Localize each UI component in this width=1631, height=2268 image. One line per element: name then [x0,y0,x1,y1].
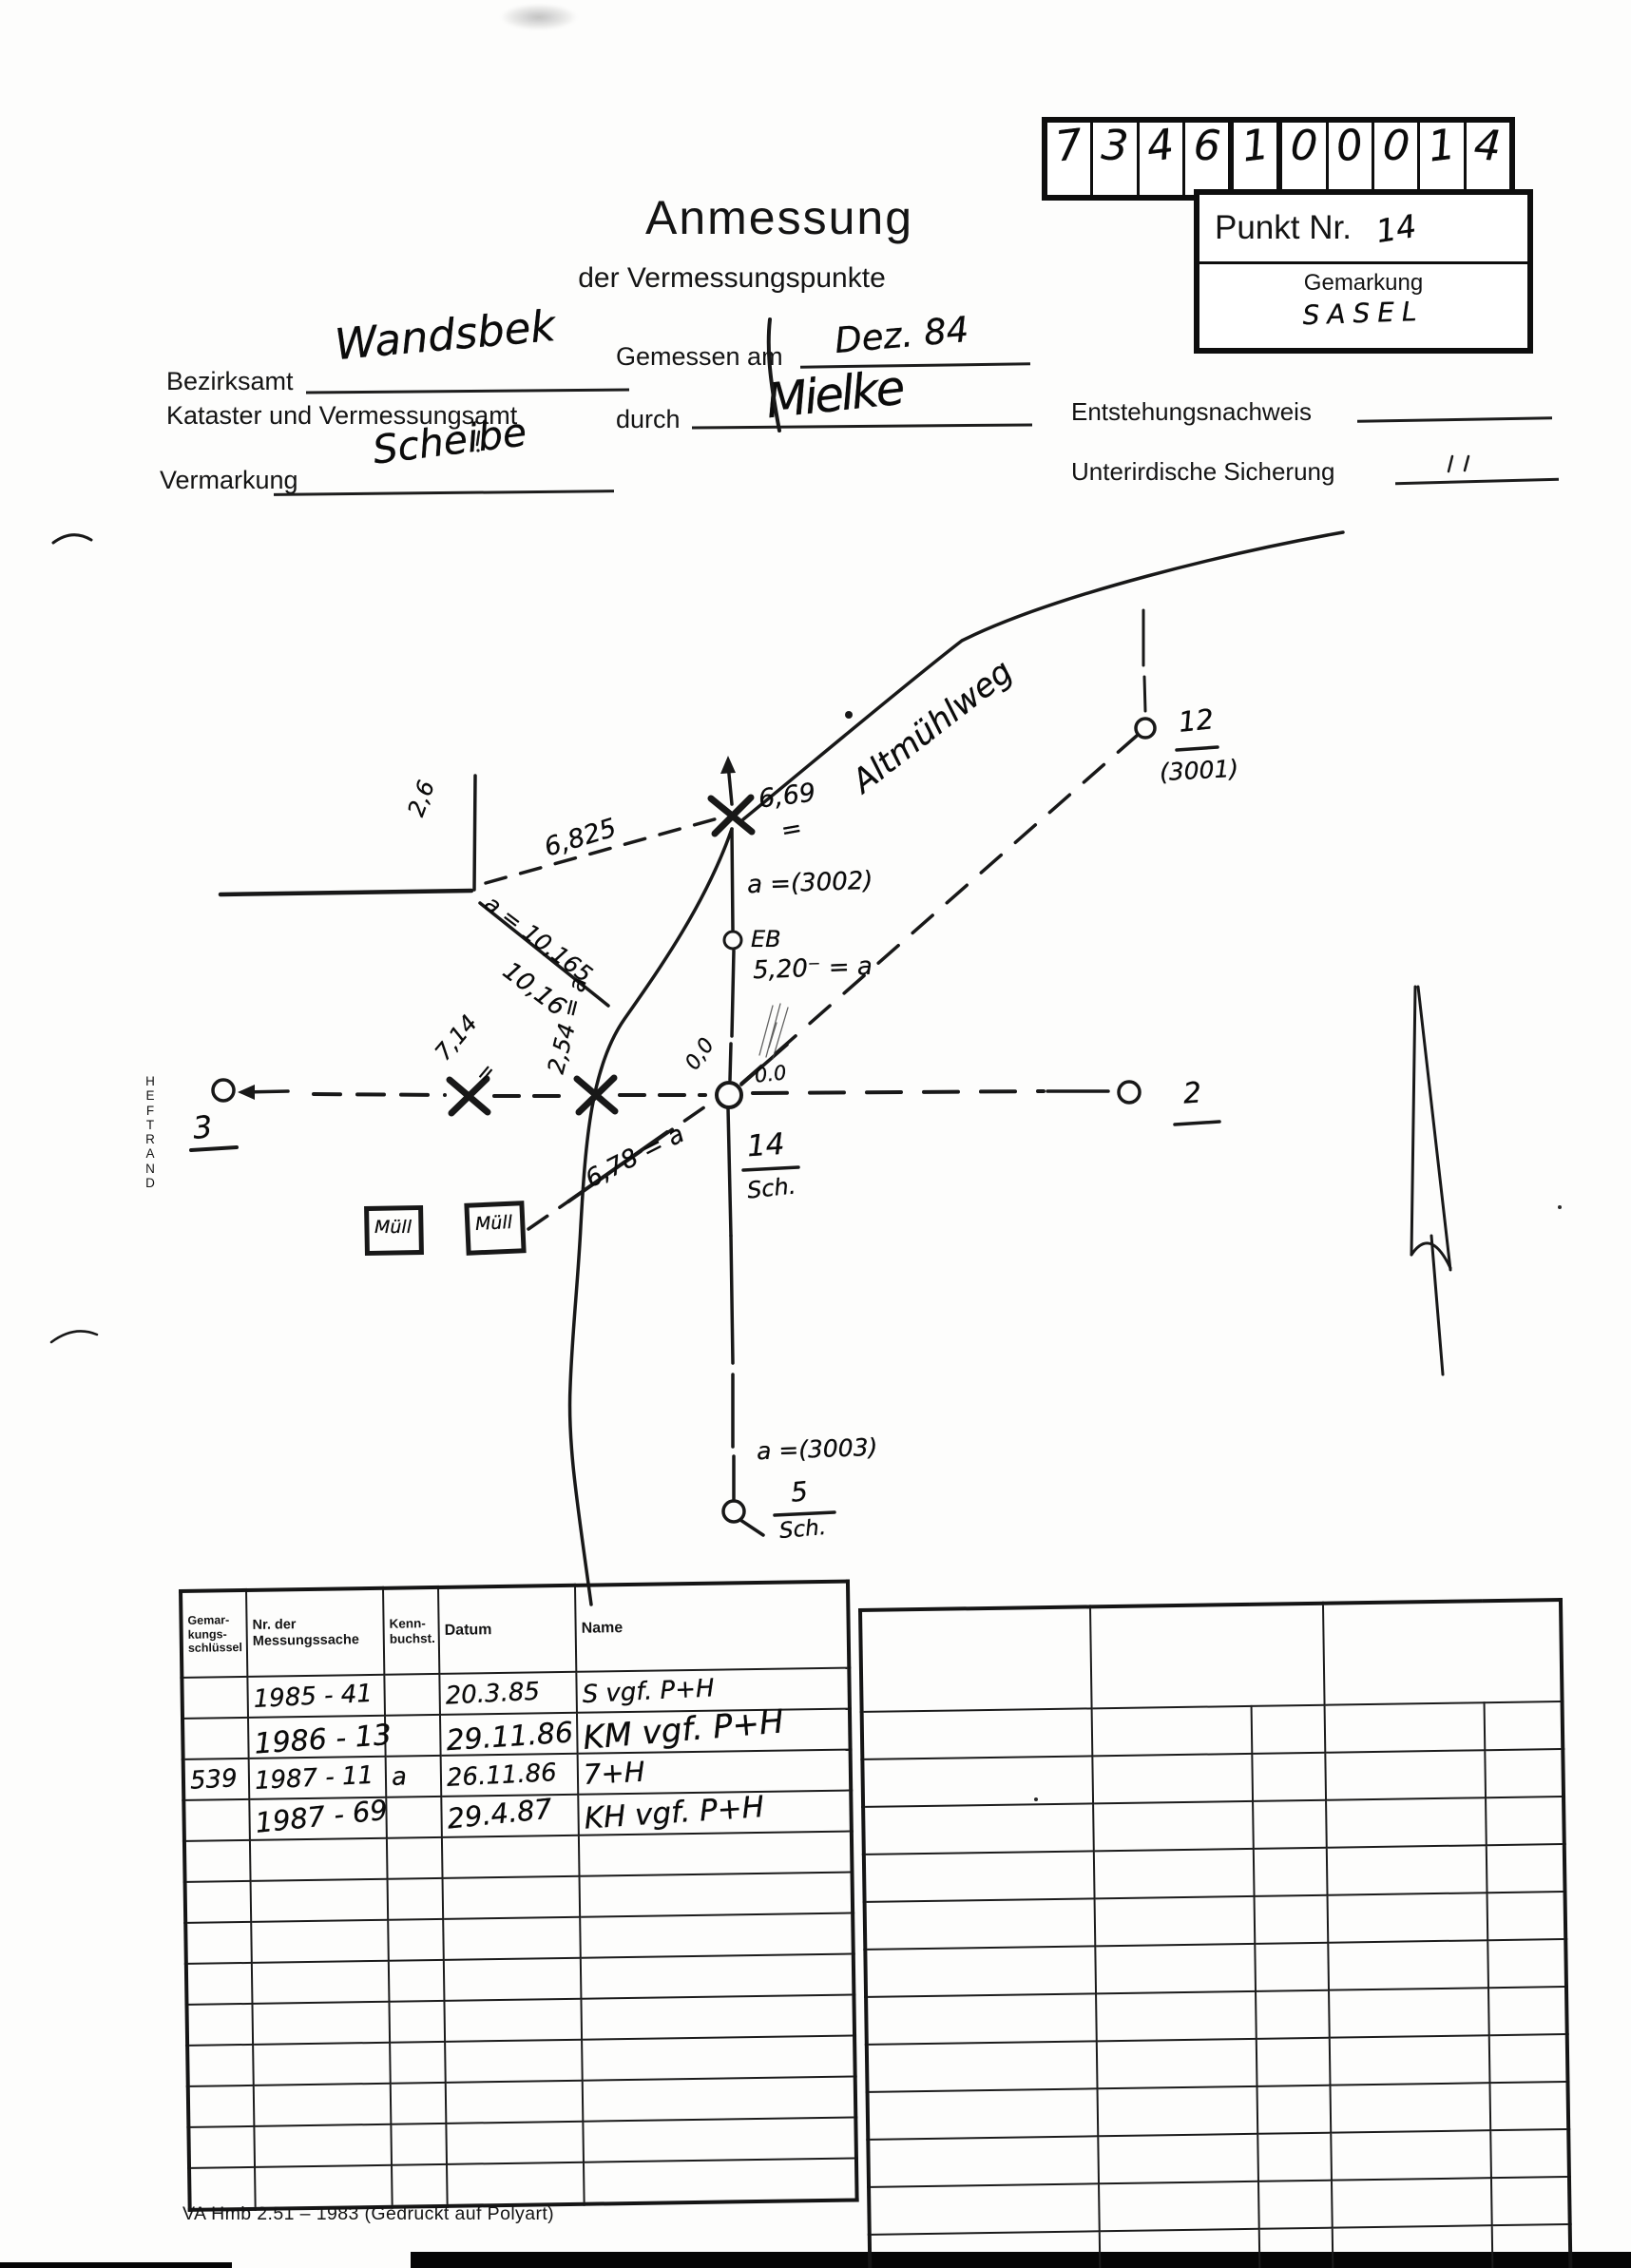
table-cell: 1987 - 69 [249,1797,387,1840]
table-cell [443,1917,581,1960]
handwritten-entry: a [391,1764,407,1790]
table-cell [186,1963,253,2005]
stray-marks [51,319,1562,1801]
point-3-circle [213,1080,234,1101]
col-gemarkungsschluessel: Gemar- kungs- schlüssel [181,1590,247,1678]
table-cell [185,1881,252,1923]
table-cell [869,2183,1100,2235]
table-cell [183,1799,250,1841]
table-cell [391,2083,447,2124]
table-cell [1330,2035,1490,2085]
col-name: Name [575,1582,849,1672]
table-cell [1095,1944,1256,1993]
form-footer: VA Hmb 2.51 – 1983 (Gedruckt auf Polyart… [182,2203,554,2225]
table-cell [1485,1749,1564,1797]
table-cell [1327,1845,1487,1894]
table-cell [1487,1844,1565,1893]
table-cell [1325,1702,1486,1752]
table-cell [581,1954,854,1999]
heftrand-label: H E F T R A N D [141,1074,160,1190]
table-cell [1253,1800,1327,1849]
table-cell [444,1958,582,2001]
table-cell [1098,2134,1258,2183]
table-cell [182,1718,249,1759]
table-cell [1095,1896,1256,1946]
table-cell [1099,2182,1259,2231]
street-edge [743,532,1343,819]
table-cell [582,2036,855,2081]
table-cell [255,2165,393,2209]
empty-log-table [858,1598,1568,2268]
table-cell [1257,2038,1331,2086]
table-cell [862,1708,1093,1759]
table-cell [188,2085,255,2127]
table-cell [445,2040,583,2083]
table-cell [862,1756,1093,1807]
table-cell [1333,2225,1493,2268]
point-12-axis [1143,610,1145,711]
label-point-14: 14 [746,1130,786,1163]
table-cell [188,2126,255,2168]
table-cell [1491,2177,1570,2225]
handwritten-entry: 539 [189,1766,238,1793]
label-eb: EB [751,928,781,951]
table-cell [1326,1797,1487,1847]
table-cell [1096,1991,1257,2041]
handwritten-entry: 7+H [583,1759,645,1789]
handwritten-entry: S vgf. P+H [582,1676,715,1707]
table-cell [1254,1848,1328,1896]
handwritten-entry: 1986 - 13 [254,1720,393,1759]
table-cell [1492,2224,1571,2268]
table-cell [447,2162,585,2206]
table-cell [389,2001,445,2043]
log-table-body: 1985 - 4120.3.85S vgf. P+H1986 - 1329.11… [182,1668,856,2210]
table-cell [184,1840,251,1882]
table-cell [250,1838,388,1881]
point-2-circle [1119,1082,1140,1103]
table-cell [185,1922,252,1964]
label-aux3003: a =(3003) [757,1435,878,1463]
table-cell [1093,1801,1254,1851]
table-cell [390,2042,446,2084]
number-underlines [191,747,1219,1515]
measurement-log-table: Gemar- kungs- schlüssel Nr. der Messungs… [179,1580,855,2212]
label-point-2: 2 [1182,1079,1202,1108]
table-cell [1332,2178,1492,2227]
table-cell [1325,1750,1486,1799]
table-cell [1331,2130,1491,2180]
label-520: 5,20⁻ = a [753,954,873,983]
label-aux3002: a =(3002) [747,869,873,898]
empty-table-body [862,1701,1571,2268]
table-cell [1487,1892,1566,1940]
table-cell [1098,2086,1258,2136]
table-cell [867,2041,1098,2092]
table-cell [446,2122,584,2164]
label-point-12: 12 [1178,705,1216,737]
table-cell [1092,1754,1253,1803]
table-cell [865,1898,1096,1950]
table-cell [186,2004,253,2046]
handwritten-entry: 1985 - 41 [253,1681,373,1711]
street-dot [845,711,853,719]
table-cell [442,1836,580,1878]
table-cell [1252,1705,1326,1754]
table-cell: a [386,1756,442,1797]
table-cell [1100,2229,1260,2268]
table-row [189,2158,857,2209]
table-cell [1490,2129,1569,2178]
table-cell [1330,2083,1490,2132]
table-cell [391,2124,447,2165]
table-cell [254,2124,392,2167]
table-cell [1329,1988,1489,2037]
handwritten-entry: KM vgf. P+H [582,1705,785,1755]
table-cell [1258,2181,1333,2229]
vertical-axis [728,829,734,1500]
table-cell [868,2136,1099,2187]
table-cell [385,1715,441,1757]
label-669: 6,69 [758,779,817,812]
table-cell [868,2088,1099,2140]
table-cell [392,2164,448,2207]
table-cell [389,1960,445,2002]
col-messungssache: Nr. der Messungssache [246,1588,384,1677]
table-cell [1092,1706,1253,1756]
table-cell [251,1879,389,1922]
north-needle [1411,987,1450,1374]
table-cell: KH vgf. P+H [578,1791,852,1836]
col-datum: Datum [438,1586,576,1674]
table-cell [387,1837,443,1879]
table-cell: 1985 - 41 [247,1675,385,1718]
handwritten-entry: 20.3.85 [445,1679,540,1708]
table-cell [581,1995,854,2040]
table-cell [384,1674,440,1716]
table-cell [1252,1753,1326,1801]
table-cell [1485,1701,1564,1750]
table-cell: 7+H [578,1750,852,1795]
handwritten-entry: 1987 - 11 [254,1762,374,1793]
table-cell [870,2231,1101,2268]
cross-mark-714 [450,1079,488,1113]
table-cell [1094,1849,1255,1898]
muell-box-1-label: Müll [374,1219,412,1237]
main-horizontal-line [238,1085,1108,1100]
table-cell [1489,2082,1568,2130]
col-kennbuchstabe: Kenn- buchst. [383,1587,439,1675]
table-cell [254,2084,392,2126]
table-cell [388,1919,444,1961]
table-cell: 1986 - 13 [248,1716,386,1759]
handwritten-entry: 29.4.87 [446,1795,553,1833]
up-arrow [720,756,736,804]
table-cell: 26.11.86 [441,1754,579,1797]
scanned-form-page: Anmessung der Vermessungspunkte 7 3 4 6 … [0,0,1631,2268]
table-cell [1486,1797,1564,1845]
table-cell [1328,1893,1488,1942]
table-cell [580,1873,854,1917]
handwritten-entry: 26.11.86 [446,1760,557,1791]
label-point-5-sch: Sch. [778,1517,827,1543]
hatch-shading [759,1004,788,1059]
table-cell [583,2117,856,2162]
table-cell [1255,1895,1329,1944]
table-cell [388,1878,444,1920]
label-zero: 0.0 [754,1063,787,1086]
table-cell [1328,1940,1488,1989]
table-cell [580,1913,854,1958]
table-cell [866,1993,1097,2045]
table-cell: 20.3.85 [439,1672,577,1715]
table-cell [1487,1939,1566,1988]
kerb-curve [570,829,732,1605]
table-cell [187,2045,254,2086]
table-cell: 29.4.87 [441,1795,579,1837]
table-cell [583,2076,856,2121]
table-cell [1259,2228,1334,2268]
handwritten-entry: 29.11.86 [446,1719,574,1756]
table-cell [579,1832,853,1876]
table-cell: S vgf. P+H [576,1668,850,1713]
table-cell [443,1876,581,1919]
table-cell [252,2002,390,2045]
empty-table-header-row [860,1600,1563,1712]
table-cell [584,2158,857,2203]
label-point-14-sch: Sch. [746,1174,797,1201]
table-cell [251,1920,389,1963]
table-cell [444,1999,582,2042]
label-669-eq: = [779,816,804,843]
table-cell [865,1946,1096,1997]
table-cell [182,1677,248,1719]
table-cell: 539 [183,1759,250,1800]
table-cell [1489,2034,1568,2083]
table-cell [252,1961,390,2004]
handwritten-entry: 1987 - 69 [254,1797,389,1837]
table-cell: KM vgf. P+H [577,1709,851,1754]
point-14-circle [717,1083,741,1107]
label-point-5: 5 [790,1478,809,1506]
point-5-tick [740,1520,763,1535]
empty-header-cell [1323,1600,1563,1705]
table-cell [1097,2039,1257,2088]
table-cell: 1987 - 11 [249,1757,387,1799]
empty-header-cell [1090,1604,1325,1709]
table-cell [1257,2133,1332,2182]
table-cell [386,1797,442,1838]
table-cell [1257,2085,1332,2134]
handwritten-entry: KH vgf. P+H [584,1793,765,1835]
table-cell [1488,1987,1567,2035]
muell-box-2-label: Müll [475,1214,513,1234]
table-cell [863,1803,1094,1855]
table-cell: 29.11.86 [440,1713,578,1756]
label-point-12-alt: (3001) [1159,757,1238,784]
log-table-header-row: Gemar- kungs- schlüssel Nr. der Messungs… [181,1582,849,1678]
table-cell [1255,1943,1329,1991]
label-point-3: 3 [192,1111,214,1144]
table-cell [864,1851,1095,1902]
point-12-circle [1136,719,1155,738]
table-cell [446,2081,584,2124]
table-cell [253,2043,391,2085]
empty-header-cell [860,1606,1092,1712]
eb-circle [724,932,741,949]
table-cell [1256,1990,1330,2039]
